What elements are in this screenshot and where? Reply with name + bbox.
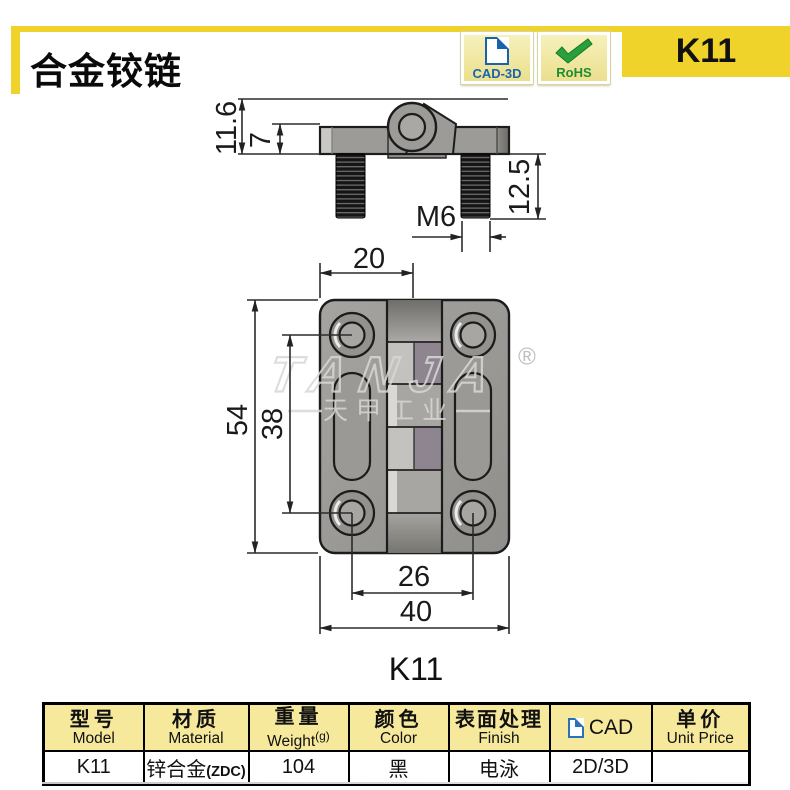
document-icon bbox=[485, 37, 509, 65]
cad-3d-badge-label: CAD-3D bbox=[472, 67, 521, 80]
page-fold-icon bbox=[497, 37, 509, 49]
col-finish: 表面处理 Finish bbox=[449, 704, 550, 752]
col-model: 型号 Model bbox=[44, 704, 144, 752]
technical-drawing: 11.6 7 12.5 M6 bbox=[0, 95, 790, 695]
cell-model: K11 bbox=[44, 751, 144, 785]
cell-weight: 104 bbox=[249, 751, 349, 785]
threaded-stud-left bbox=[336, 154, 365, 218]
watermark-company: 天甲工业 bbox=[323, 397, 455, 425]
catalog-page: 合金铰链 CAD-3D RoHS K11 bbox=[0, 0, 790, 790]
dim-overall-height: 54 bbox=[222, 404, 254, 436]
dim-hole-pitch-horizontal: 26 bbox=[398, 561, 430, 593]
col-material: 材质 Material bbox=[144, 704, 249, 752]
table-shadow-line bbox=[42, 782, 748, 784]
rohs-badge-label: RoHS bbox=[556, 66, 591, 79]
col-weight: 重量 Weight(g) bbox=[249, 704, 349, 752]
drawing-caption: K11 bbox=[389, 651, 444, 687]
dim-total-height: 11.6 bbox=[211, 101, 243, 155]
cell-material: 锌合金(ZDC) bbox=[144, 751, 249, 785]
threaded-stud-right bbox=[461, 154, 490, 218]
hinge-front-view bbox=[320, 300, 509, 553]
col-cad: CAD bbox=[550, 704, 652, 752]
model-number-header: K11 bbox=[622, 26, 790, 77]
dim-hole-to-center: 20 bbox=[353, 243, 385, 275]
dim-thread-spec: M6 bbox=[416, 201, 456, 233]
spec-table-header-row: 型号 Model 材质 Material 重量 Weight(g) 颜色 Col… bbox=[44, 704, 750, 752]
dim-hole-pitch-vertical: 38 bbox=[257, 408, 289, 440]
checkmark-icon bbox=[554, 38, 594, 64]
hinge-barrel bbox=[387, 300, 442, 553]
dim-leaf-thickness: 7 bbox=[245, 132, 277, 148]
spec-table: 型号 Model 材质 Material 重量 Weight(g) 颜色 Col… bbox=[42, 702, 751, 786]
header-accent-bar bbox=[11, 26, 20, 94]
cad-3d-badge: CAD-3D bbox=[461, 32, 533, 84]
page-title: 合金铰链 bbox=[30, 41, 182, 95]
col-color: 颜色 Color bbox=[349, 704, 449, 752]
cell-cad: 2D/3D bbox=[550, 751, 652, 785]
hinge-side-view bbox=[320, 103, 509, 218]
col-unit-price: 单价 Unit Price bbox=[652, 704, 750, 752]
cell-color: 黑 bbox=[349, 751, 449, 785]
hinge-pin-hole bbox=[399, 114, 425, 140]
cell-unit-price bbox=[652, 751, 750, 785]
rohs-badge: RoHS bbox=[538, 32, 610, 84]
spec-table-data-row: K11 锌合金(ZDC) 104 黑 电泳 2D/3D bbox=[44, 751, 750, 785]
cell-finish: 电泳 bbox=[449, 751, 550, 785]
side-view-dimensions: 11.6 7 12.5 M6 bbox=[211, 99, 546, 252]
dim-overall-width: 40 bbox=[400, 596, 432, 628]
registered-mark: ® bbox=[518, 344, 536, 371]
dim-stud-length: 12.5 bbox=[504, 159, 536, 215]
document-icon-small bbox=[568, 718, 584, 738]
watermark-brand: TANJA bbox=[265, 346, 508, 403]
